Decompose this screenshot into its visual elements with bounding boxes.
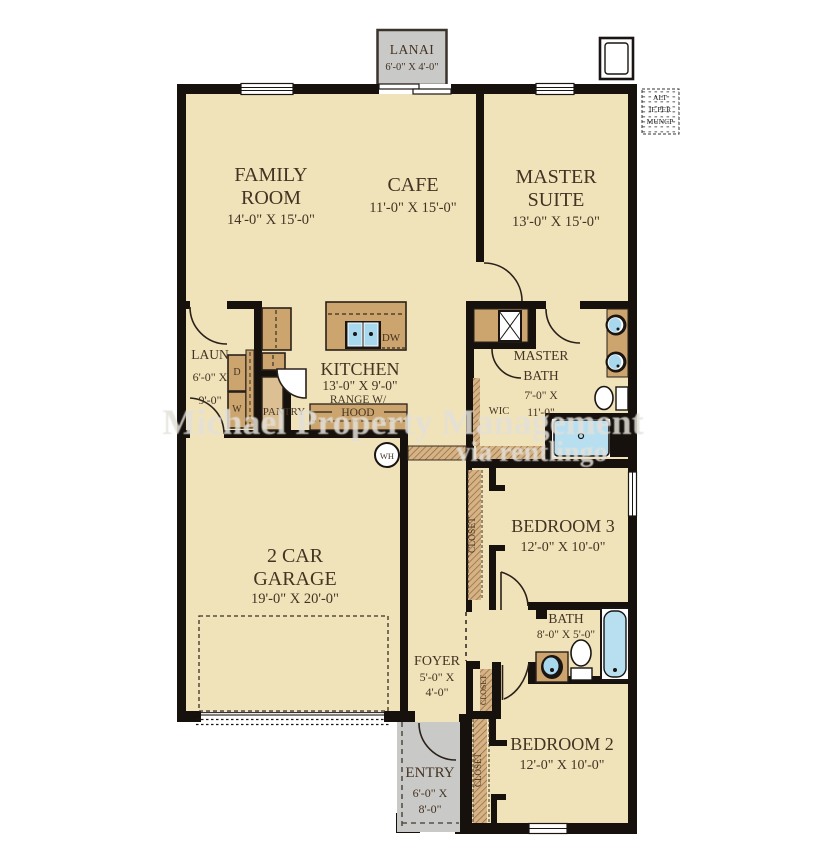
svg-text:MASTER: MASTER (515, 166, 597, 188)
svg-text:BATH: BATH (523, 368, 559, 383)
svg-text:CLOSET: CLOSET (473, 753, 483, 788)
svg-text:6'-0" X: 6'-0" X (193, 370, 228, 384)
svg-text:D: D (233, 367, 240, 378)
svg-text:SUITE: SUITE (528, 189, 585, 211)
svg-text:5'-0" X: 5'-0" X (420, 670, 455, 684)
svg-text:ENTRY: ENTRY (405, 765, 454, 781)
svg-text:BEDROOM 2: BEDROOM 2 (510, 734, 614, 754)
svg-text:13'-0" X 9'-0": 13'-0" X 9'-0" (322, 378, 397, 393)
svg-text:19'-0" X 20'-0": 19'-0" X 20'-0" (251, 591, 339, 607)
svg-text:BEDROOM 3: BEDROOM 3 (511, 516, 615, 536)
svg-text:CLOSET: CLOSET (479, 675, 488, 705)
svg-text:CAFE: CAFE (387, 174, 438, 196)
svg-text:WH: WH (380, 451, 394, 461)
svg-text:11'-0" X 15'-0": 11'-0" X 15'-0" (369, 200, 456, 216)
svg-text:MASTER: MASTER (514, 348, 569, 363)
svg-text:8'-0": 8'-0" (418, 802, 441, 816)
svg-text:8'-0" X 5'-0": 8'-0" X 5'-0" (537, 629, 595, 641)
svg-text:GARAGE: GARAGE (253, 568, 336, 590)
svg-text:2 CAR: 2 CAR (267, 545, 324, 567)
svg-text:IF PER: IF PER (649, 105, 671, 114)
svg-text:14'-0" X 15'-0": 14'-0" X 15'-0" (227, 212, 315, 228)
svg-text:LAUN: LAUN (191, 347, 229, 362)
svg-text:MUNCP: MUNCP (647, 117, 674, 126)
svg-text:DW: DW (382, 332, 401, 344)
svg-text:FAMILY: FAMILY (234, 164, 307, 186)
svg-text:ALT: ALT (653, 93, 667, 102)
svg-text:BATH: BATH (548, 611, 584, 626)
svg-text:LANAI: LANAI (390, 42, 435, 57)
svg-text:6'-0" X: 6'-0" X (413, 786, 448, 800)
svg-text:Michael Property Management: Michael Property Management (162, 402, 643, 442)
svg-text:KITCHEN: KITCHEN (321, 359, 400, 379)
svg-text:4'-0": 4'-0" (425, 685, 448, 699)
svg-text:6'-0" X 4'-0": 6'-0" X 4'-0" (385, 62, 438, 73)
svg-text:7'-0" X: 7'-0" X (524, 390, 558, 402)
svg-text:ROOM: ROOM (241, 187, 301, 209)
svg-text:CLOSET: CLOSET (468, 517, 478, 553)
svg-text:FOYER: FOYER (414, 654, 461, 669)
svg-text:13'-0" X 15'-0": 13'-0" X 15'-0" (512, 214, 600, 230)
svg-text:12'-0" X 10'-0": 12'-0" X 10'-0" (521, 540, 606, 555)
svg-text:12'-0" X 10'-0": 12'-0" X 10'-0" (520, 758, 605, 773)
svg-text:via rentlingo: via rentlingo (456, 437, 607, 468)
